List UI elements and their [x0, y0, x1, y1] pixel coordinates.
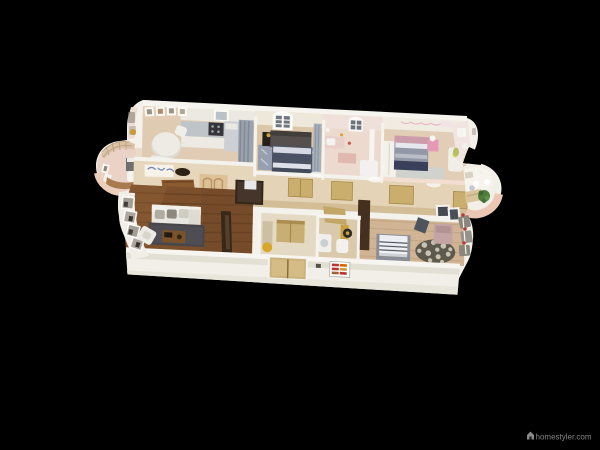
svg-text:homestyler.com: homestyler.com	[536, 433, 592, 442]
